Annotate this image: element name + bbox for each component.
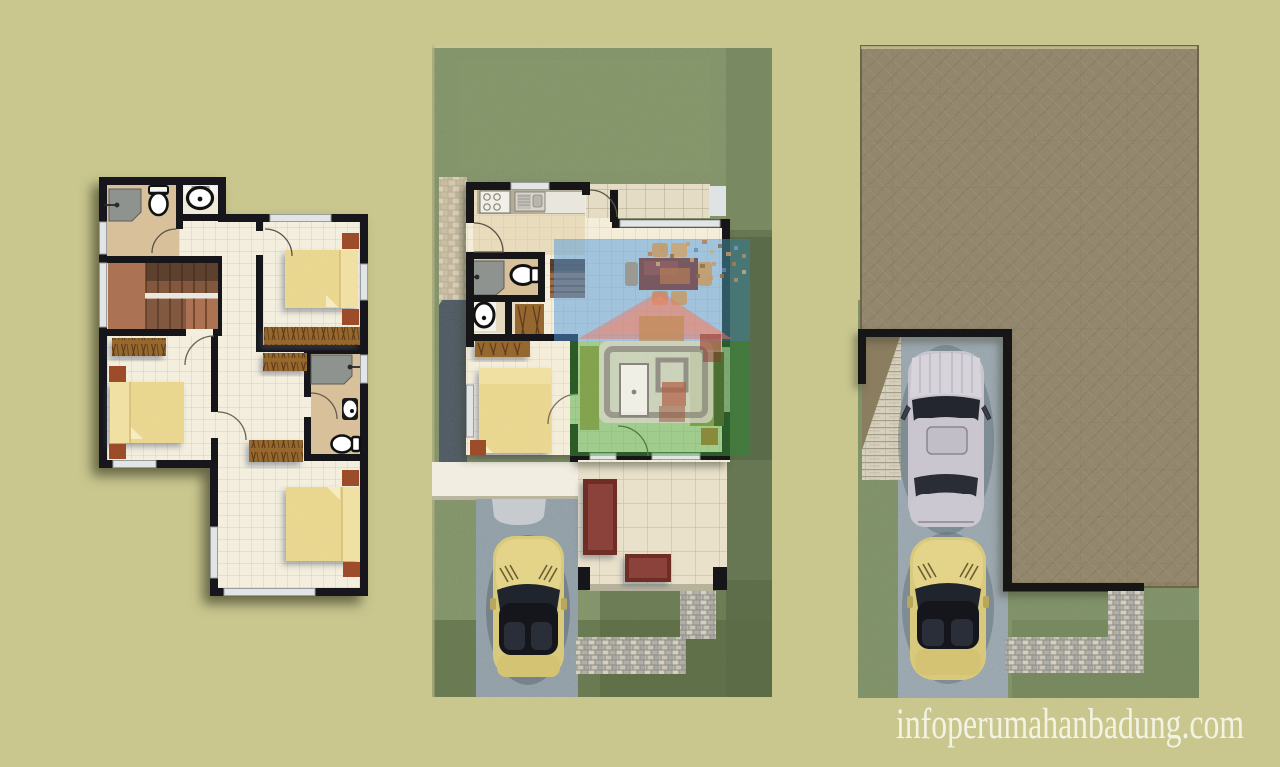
- svg-text:infoperumahanbadung.com: infoperumahanbadung.com: [896, 701, 1244, 748]
